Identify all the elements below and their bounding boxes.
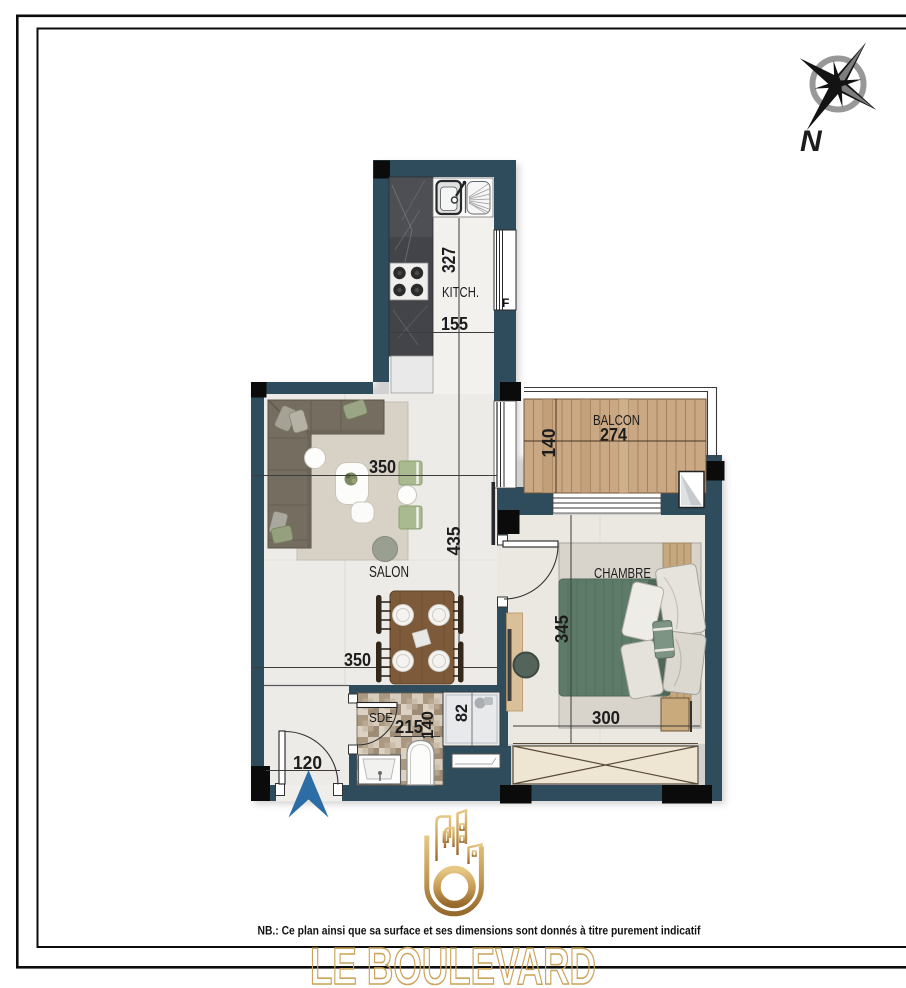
- svg-text:435: 435: [443, 527, 464, 556]
- svg-text:327: 327: [439, 247, 459, 273]
- svg-text:KITCH.: KITCH.: [442, 284, 479, 301]
- svg-text:N: N: [800, 125, 823, 158]
- svg-text:SDE: SDE: [369, 710, 393, 725]
- svg-text:345: 345: [551, 615, 572, 643]
- svg-text:350: 350: [344, 649, 371, 670]
- svg-text:82: 82: [452, 704, 471, 722]
- svg-text:140: 140: [538, 429, 559, 458]
- svg-text:120: 120: [293, 752, 322, 773]
- svg-text:140: 140: [418, 711, 437, 739]
- svg-text:LE BOULEVARD: LE BOULEVARD: [310, 938, 596, 988]
- svg-text:SALON: SALON: [369, 564, 409, 581]
- svg-text:F: F: [502, 296, 509, 310]
- svg-text:CHAMBRE: CHAMBRE: [594, 565, 651, 582]
- svg-text:350: 350: [369, 456, 396, 477]
- svg-text:274: 274: [600, 424, 628, 445]
- svg-text:300: 300: [592, 707, 620, 728]
- svg-text:155: 155: [441, 313, 468, 334]
- svg-text:NB.: Ce plan ainsi que sa surf: NB.: Ce plan ainsi que sa surface et ses…: [258, 926, 701, 938]
